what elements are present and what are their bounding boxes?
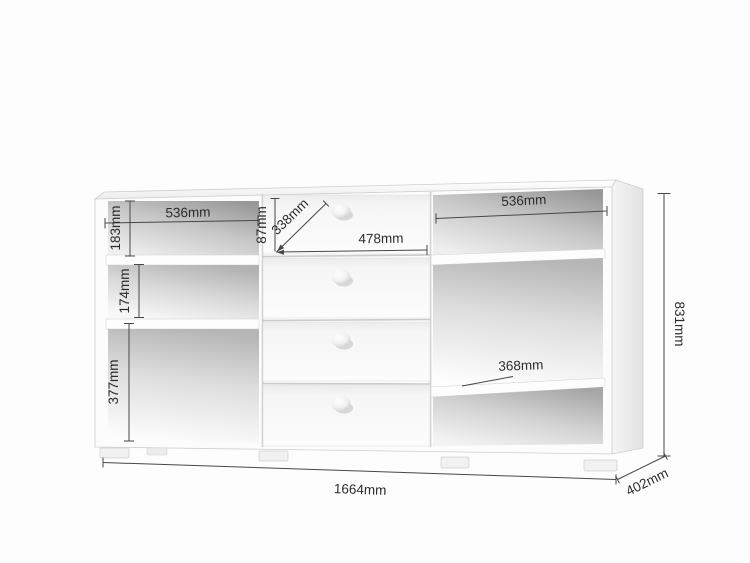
foot-left (100, 448, 129, 458)
foot-center-left (259, 451, 288, 461)
dim-left-top-height-label: 183mm (108, 205, 123, 250)
drawer-knob-1 (332, 204, 351, 219)
drawer-knob-4 (332, 397, 351, 412)
sideboard-diagram-canvas: 536mm 183mm 174mm 377mm 87mm (0, 0, 750, 563)
foot-left-back (147, 448, 167, 455)
right-bottom-compartment (433, 387, 603, 446)
dim-right-shelf-depth-label: 368mm (498, 357, 544, 374)
cabinet-side-panel (612, 180, 643, 454)
right-shelf-section (431, 189, 605, 446)
foot-right (584, 460, 617, 471)
drawer-knob-3 (332, 333, 351, 348)
dim-right-compartment-width-label: 536mm (501, 192, 547, 209)
dim-left-compartment-width-label: 536mm (165, 205, 210, 221)
drawer-4 (263, 385, 430, 446)
foot-center-right (441, 457, 469, 468)
drawer-gap-3 (263, 384, 430, 385)
dim-overall-depth: 402mm (616, 452, 671, 498)
dim-overall-width-label: 1664mm (334, 481, 387, 498)
drawer-gap-2 (263, 320, 430, 321)
dim-left-middle-height-label: 174mm (117, 268, 132, 313)
dim-drawer-width-label: 478mm (358, 231, 403, 247)
dim-overall-height-label: 831mm (672, 301, 687, 346)
dim-left-bottom-height-label: 377mm (106, 359, 121, 404)
dim-overall-depth-label: 402mm (624, 465, 671, 498)
furniture-dimension-diagram: 536mm 183mm 174mm 377mm 87mm (0, 0, 750, 563)
drawer-3 (263, 322, 430, 381)
left-bottom-compartment (108, 329, 259, 443)
cabinet (95, 180, 643, 471)
drawer-knob-2 (332, 270, 351, 285)
dim-overall-height: 831mm (658, 194, 688, 457)
drawer-2 (263, 258, 430, 318)
dim-top-drawer-height-label: 87mm (254, 206, 269, 244)
dim-overall-width: 1664mm (103, 458, 616, 498)
